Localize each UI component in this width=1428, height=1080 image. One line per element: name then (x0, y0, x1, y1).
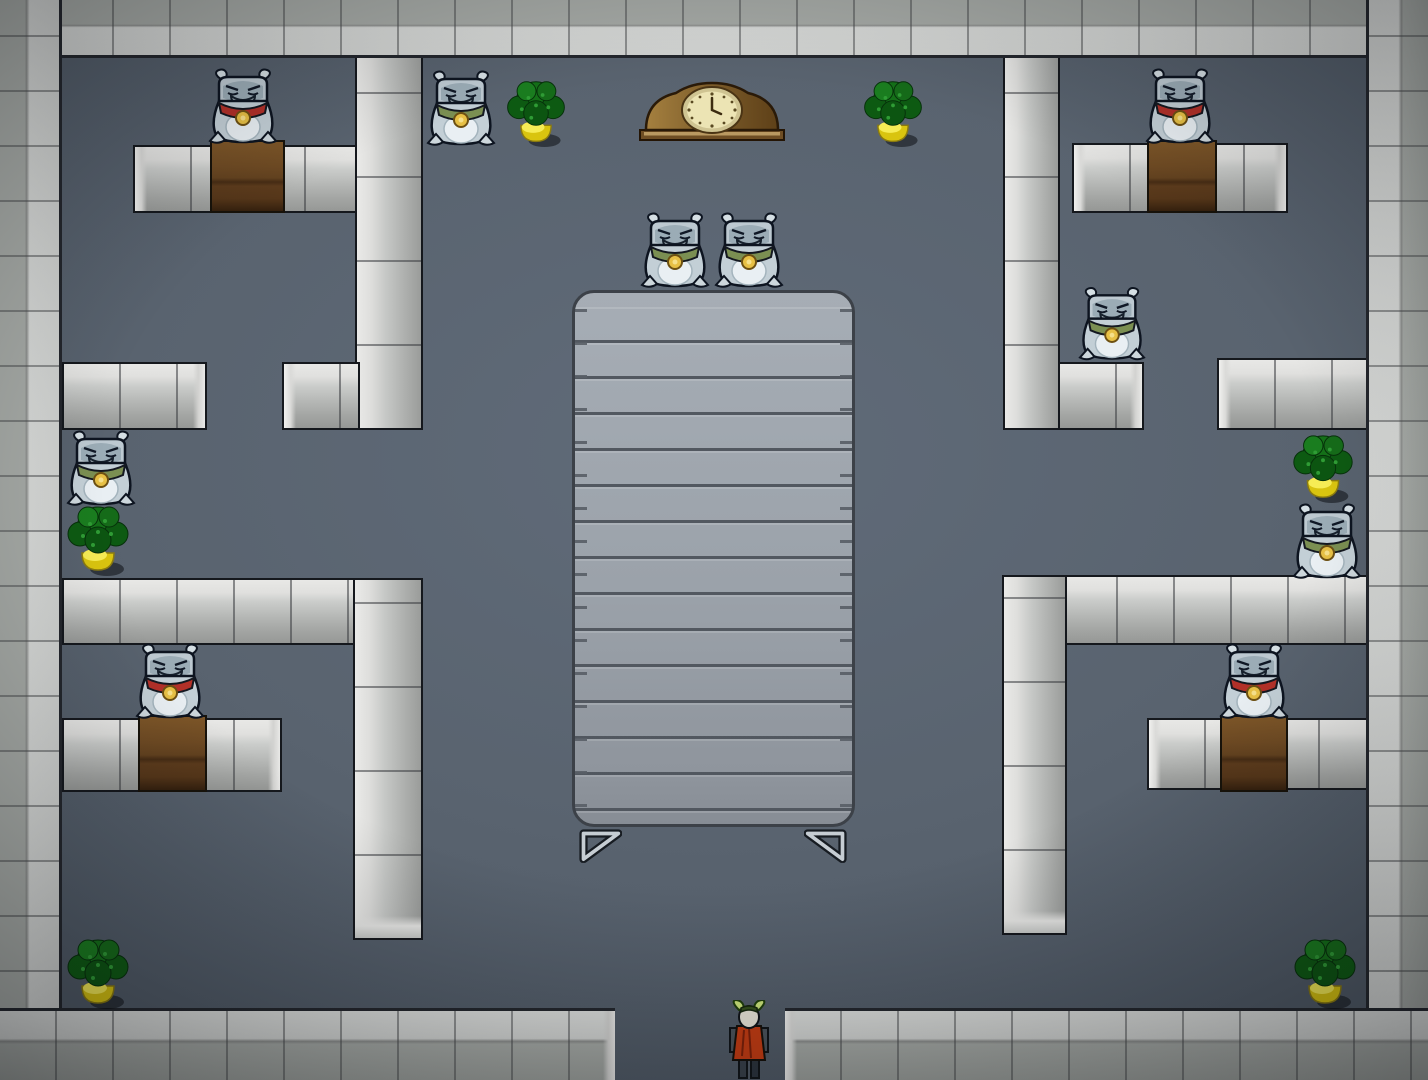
table-leg (804, 828, 848, 864)
border-wall-left (0, 0, 62, 1080)
table-leg (578, 828, 622, 864)
creature-npc[interactable] (1143, 68, 1217, 144)
border-wall-right (1366, 0, 1428, 1080)
potted-plant-icon (58, 936, 138, 1010)
border-wall-bottom-right (785, 1008, 1428, 1080)
wooden-desk (210, 140, 285, 213)
wall-end-cap (355, 916, 421, 938)
border-wall-top (0, 0, 1428, 58)
potted-plant-icon (498, 78, 574, 148)
stone-wall (62, 578, 357, 645)
creature-npc[interactable] (424, 70, 498, 146)
wall-end-cap (135, 147, 147, 211)
stone-wall (353, 578, 423, 940)
stone-bench (1217, 358, 1368, 430)
potted-plant-icon (1286, 936, 1364, 1010)
potted-plant-icon (1286, 432, 1360, 504)
potted-plant-icon (60, 503, 136, 577)
doorway-end-cap (603, 1011, 615, 1080)
wall-end-cap (1274, 145, 1286, 211)
wall-end-cap (1130, 364, 1142, 428)
wall-end-cap (1219, 360, 1231, 428)
creature-npc[interactable] (132, 643, 208, 719)
border-wall-bottom-left (0, 1008, 615, 1080)
creature-npc[interactable] (712, 212, 786, 288)
wall-end-cap (268, 720, 280, 790)
wall-end-cap (284, 364, 296, 428)
stone-wall (355, 30, 423, 430)
mantel-clock-icon (636, 78, 788, 144)
stone-bench (62, 362, 207, 430)
creature-npc[interactable] (638, 212, 712, 288)
room-scene (0, 0, 1428, 1080)
creature-npc[interactable] (1216, 643, 1292, 719)
game-viewport (0, 0, 1428, 1080)
doorway-end-cap (785, 1011, 797, 1080)
long-table (572, 290, 855, 827)
potted-plant-icon (855, 78, 931, 148)
stone-wall (1003, 30, 1060, 430)
player-character[interactable] (725, 1000, 773, 1080)
wall-end-cap (1004, 911, 1065, 933)
creature-npc[interactable] (64, 430, 138, 506)
wooden-desk (138, 715, 207, 792)
wooden-desk (1147, 140, 1217, 213)
stone-wall (1002, 575, 1067, 935)
stone-wall (1058, 362, 1144, 430)
wall-end-cap (1074, 145, 1086, 211)
wall-end-cap (193, 364, 205, 428)
wall-end-cap (1149, 720, 1161, 788)
stone-wall (282, 362, 360, 430)
wooden-desk (1220, 715, 1288, 792)
creature-npc[interactable] (1290, 503, 1364, 579)
creature-npc[interactable] (206, 68, 280, 144)
creature-npc[interactable] (1076, 286, 1148, 361)
